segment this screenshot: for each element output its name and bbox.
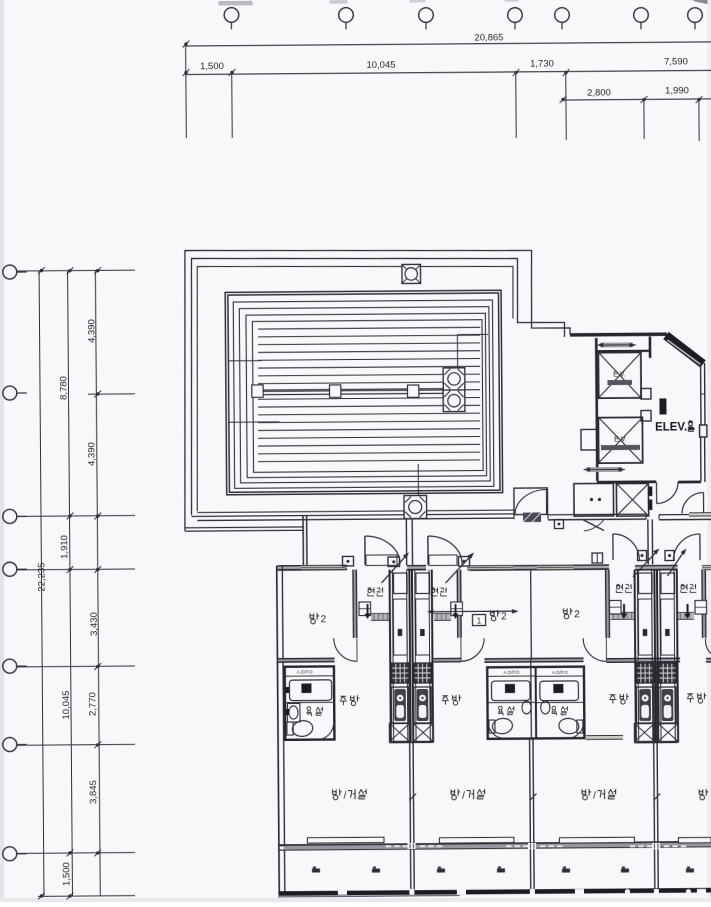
svg-text:20,865: 20,865 <box>474 32 503 43</box>
svg-text:1: 1 <box>477 615 482 625</box>
svg-text:10,045: 10,045 <box>61 690 72 719</box>
svg-text:1,500: 1,500 <box>200 61 224 72</box>
svg-text:/: / <box>343 789 346 801</box>
svg-text:2: 2 <box>574 608 580 620</box>
svg-text:/: / <box>462 789 465 801</box>
svg-text:ELEV.: ELEV. <box>655 421 687 433</box>
svg-text:A.D/P.D: A.D/P.D <box>297 669 314 674</box>
svg-text:1,910: 1,910 <box>59 535 70 559</box>
svg-text:A.D/P.D: A.D/P.D <box>504 670 521 675</box>
svg-text:8,780: 8,780 <box>58 376 69 400</box>
svg-text:4,390: 4,390 <box>86 319 97 343</box>
svg-text:22,235: 22,235 <box>36 562 47 591</box>
svg-text:1,500: 1,500 <box>61 862 72 886</box>
svg-text:4,390: 4,390 <box>86 442 97 466</box>
svg-text:2,770: 2,770 <box>87 692 98 716</box>
svg-text:E.V.: E.V. <box>613 371 626 378</box>
svg-text:E.V.: E.V. <box>614 436 627 443</box>
svg-text:2: 2 <box>320 613 326 625</box>
svg-text:10,045: 10,045 <box>366 60 395 71</box>
svg-text:A.D/P.D: A.D/P.D <box>552 670 569 675</box>
svg-text:7,590: 7,590 <box>664 56 688 67</box>
svg-text:1,730: 1,730 <box>530 58 554 69</box>
svg-text:2,800: 2,800 <box>587 87 611 98</box>
svg-text:3,430: 3,430 <box>89 612 100 636</box>
svg-text:3,845: 3,845 <box>88 780 99 804</box>
svg-text:2: 2 <box>501 611 507 623</box>
svg-text:1,990: 1,990 <box>665 85 689 96</box>
svg-text:/: / <box>593 790 596 802</box>
